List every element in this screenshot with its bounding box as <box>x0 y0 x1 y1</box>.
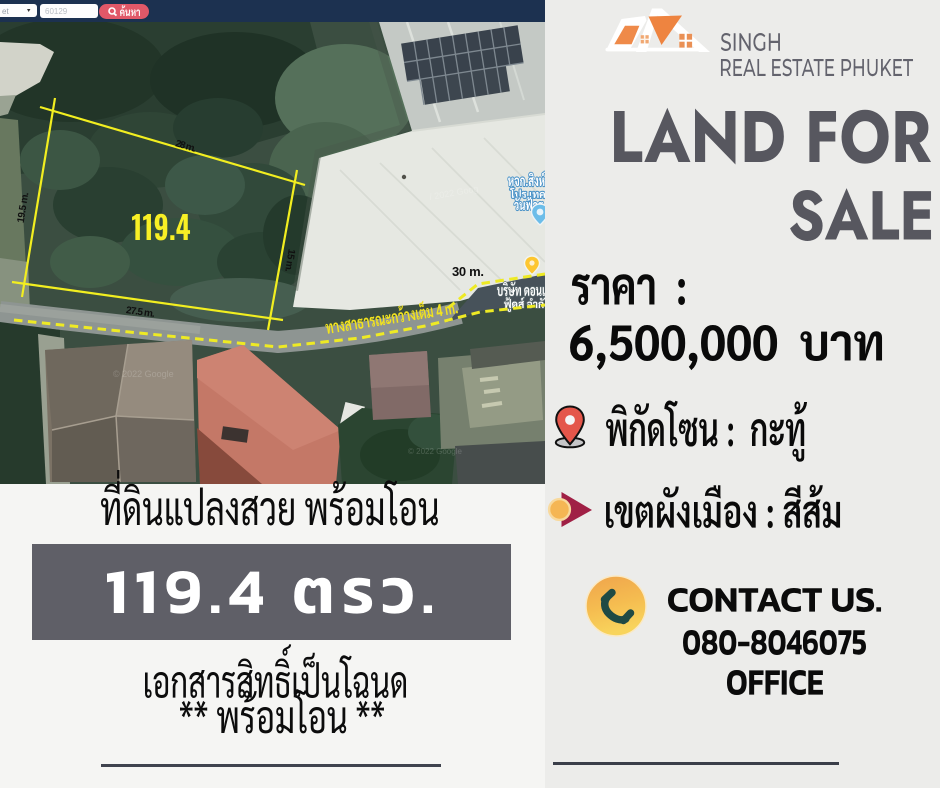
svg-text:et: et <box>2 7 9 16</box>
svg-text:© 2022 Google: © 2022 Google <box>113 369 174 379</box>
svg-text:© 2022 Google: © 2022 Google <box>408 447 462 456</box>
svg-text:30 m.: 30 m. <box>452 264 484 279</box>
svg-text:60129: 60129 <box>45 7 68 16</box>
